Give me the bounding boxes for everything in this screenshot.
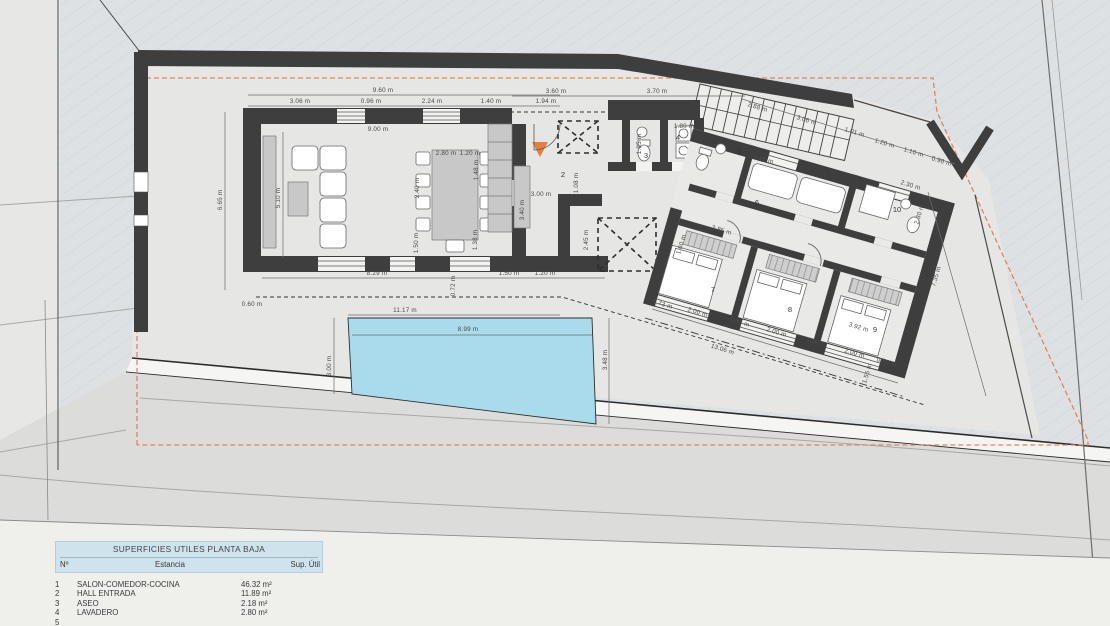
dimension-label: 3.00 m [531,191,551,198]
dimension-label: 9.00 m [368,126,388,133]
room-number: 4 [676,133,680,142]
room-number: 9 [873,325,877,334]
table-row: 5 [55,618,323,626]
dimension-label: 3.00 m [326,356,333,376]
table-cell [241,618,315,626]
dimension-label: 1.50 m [413,233,420,253]
dimension-label: 1.95 m [636,134,643,154]
surfaces-table-rows: 1SALON-COMEDOR-COCINA46.32 m²2HALL ENTRA… [55,580,323,626]
surfaces-table-title: SUPERFICIES UTILES PLANTA BAJA [60,544,318,554]
dimension-label: 1.80 m [674,123,694,130]
table-cell: 2 [55,589,77,598]
window [423,109,460,123]
surfaces-table-header: SUPERFICIES UTILES PLANTA BAJA Nº Estanc… [55,541,323,573]
table-cell: 11.89 m² [241,589,315,598]
window [337,109,365,123]
dimension-label: 3.60 m [546,88,566,95]
room-number: 8 [788,305,792,314]
dimension-label: 2.45 m [583,230,590,250]
window [390,257,415,271]
dimension-label: 9.60 m [373,87,393,94]
table-row: 2HALL ENTRADA11.89 m² [55,589,323,598]
dimension-label: 1.20 m [460,150,480,157]
dimension-label: 6.65 m [217,190,224,210]
coffee-table [288,182,308,216]
room-number: 3 [644,151,648,160]
col-estancia: Estancia [94,560,246,569]
surfaces-table: SUPERFICIES UTILES PLANTA BAJA Nº Estanc… [55,541,323,626]
dimension-label: 11.17 m [393,307,417,314]
dimension-label: 3.48 m [602,350,609,370]
dimension-label: 1.38 m [472,230,479,250]
dimension-label: 0.60 m [242,301,262,308]
table-cell: 4 [55,608,77,617]
table-cell: 1 [55,580,77,589]
dimension-label: 3.40 m [519,200,526,220]
dimension-label: 0.96 m [361,98,381,105]
room-number: 6 [755,198,759,207]
dimension-label: 8.29 m [367,270,387,277]
room-number: 2 [561,170,565,179]
dimension-label: 5.10 m [275,188,282,208]
dimension-label: 3.70 m [647,88,667,95]
dimension-label: 1.20 m [535,270,555,277]
table-row: 3ASEO2.18 m² [55,599,323,608]
dimension-label: 3.06 m [290,98,310,105]
col-numero: Nº [60,560,94,569]
dimension-label: 2.80 m [436,150,456,157]
dimension-label: 1.48 m [473,160,480,180]
dimension-label: 2.24 m [422,98,442,105]
room-number: 10 [893,205,901,214]
room-number: 5 [737,147,741,156]
table-row: 4LAVADERO2.80 m² [55,608,323,617]
table-cell: 2.18 m² [241,599,315,608]
dimension-label: 1.94 m [536,98,556,105]
dimension-label: 1.08 m [573,173,580,193]
dimension-label: 2.40 m [414,178,421,198]
table-cell: 46.32 m² [241,580,315,589]
table-cell: 5 [55,618,77,626]
table-cell: 3 [55,599,77,608]
table-cell: 2.80 m² [241,608,315,617]
surfaces-table-columns: Nº Estancia Sup. Útil [60,557,318,569]
floor-plan-sheet: 9.60 m3.06 m0.96 m2.24 m1.40 m1.94 m3.60… [0,0,1110,626]
window [450,257,490,271]
table-cell: ASEO [77,599,241,608]
dimension-label: 1.50 m [499,270,519,277]
table-cell [77,618,241,626]
table-row: 1SALON-COMEDOR-COCINA46.32 m² [55,580,323,589]
col-sup-util: Sup. Útil [246,560,320,569]
table-cell: LAVADERO [77,608,241,617]
room-number: 7 [711,285,715,294]
floor-plan-drawing: 9.60 m3.06 m0.96 m2.24 m1.40 m1.94 m3.60… [0,0,1110,626]
window [318,257,365,271]
dimension-label: 1.40 m [481,98,501,105]
dimension-label: 0.72 m [450,276,457,296]
table-cell: SALON-COMEDOR-COCINA [77,580,241,589]
table-cell: HALL ENTRADA [77,589,241,598]
dimension-label: 8.99 m [458,326,478,333]
